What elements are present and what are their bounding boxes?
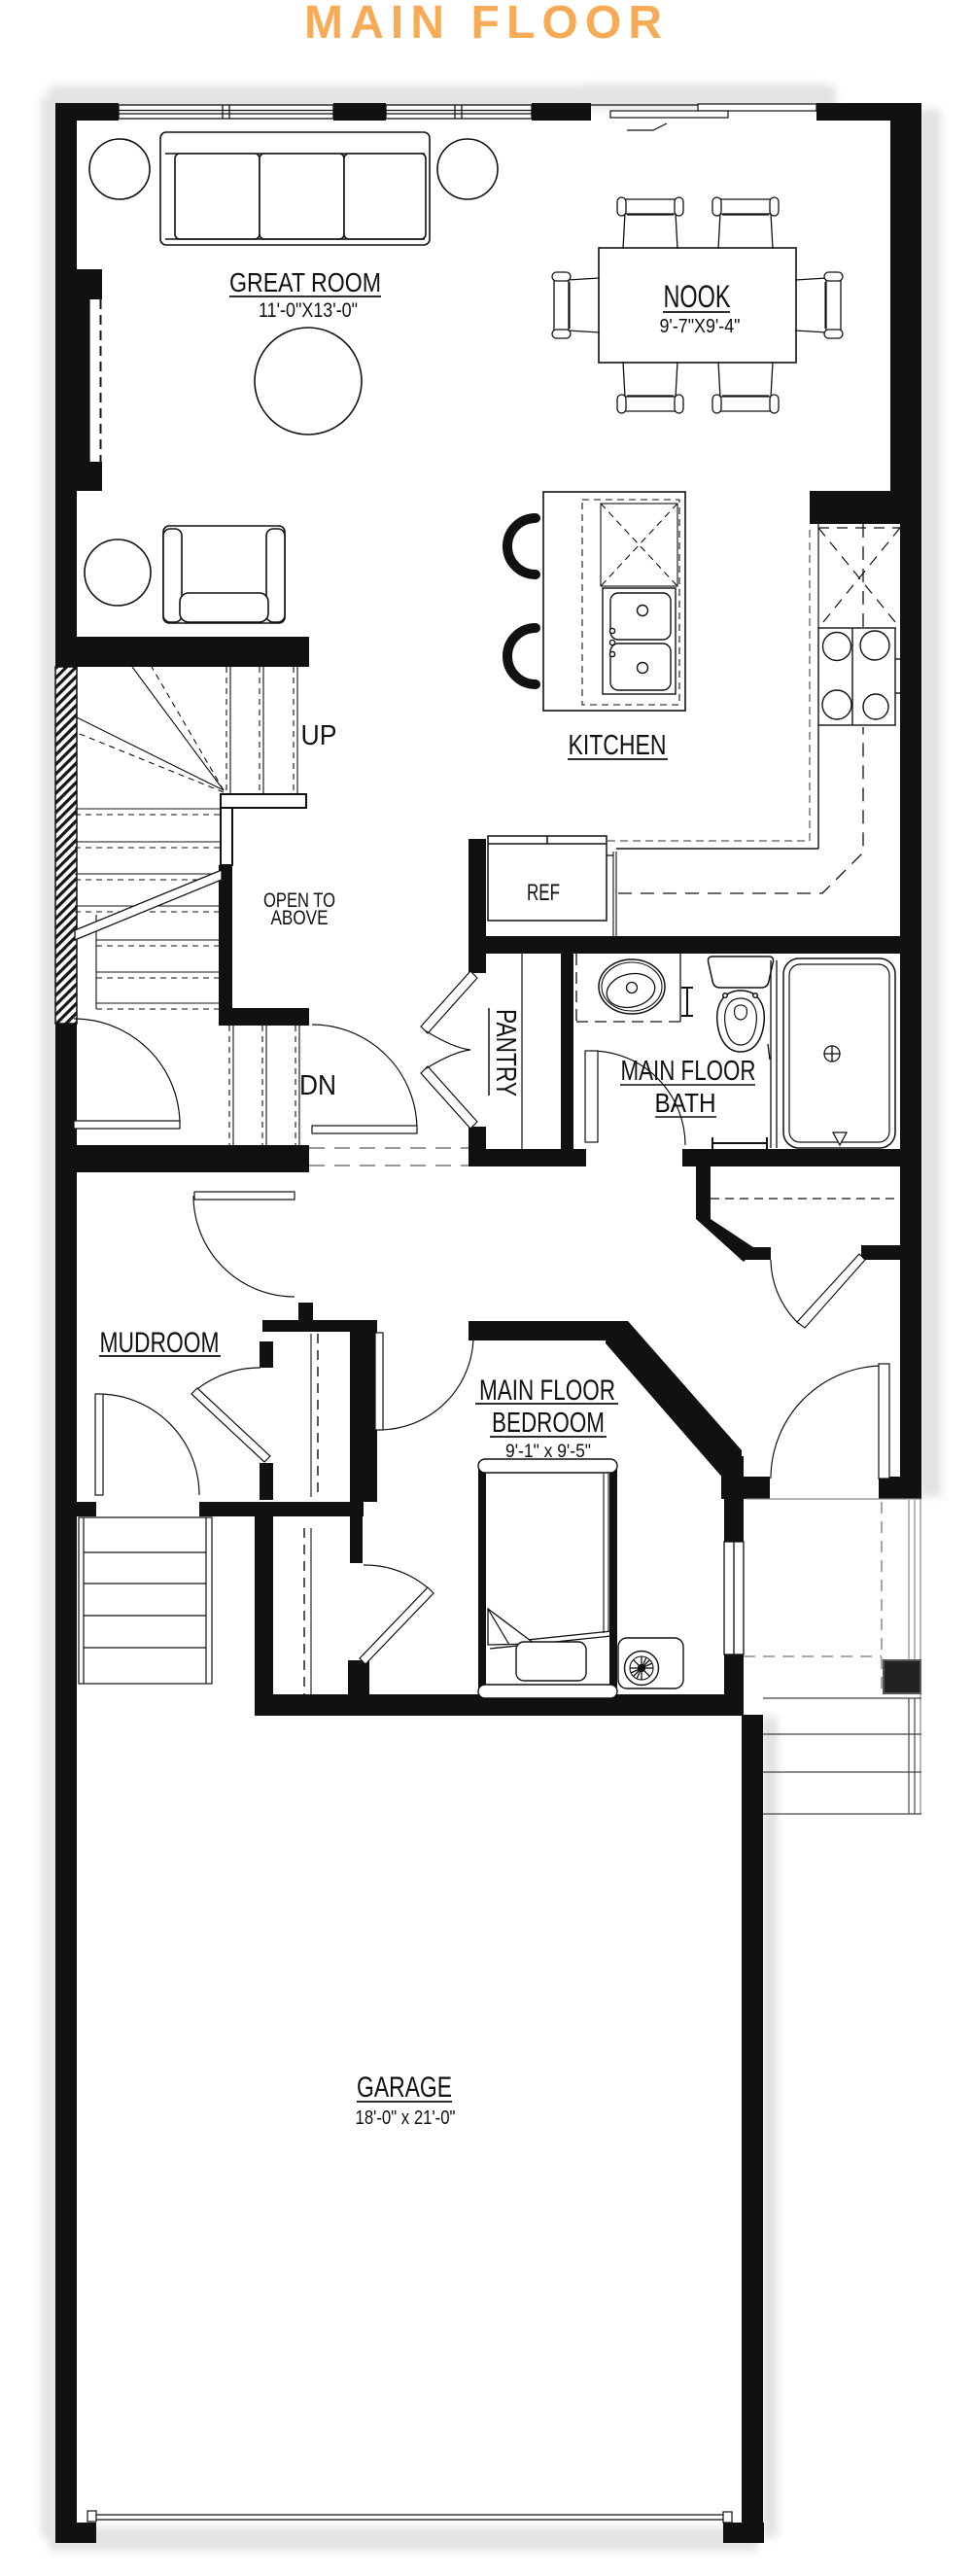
svg-text:KITCHEN: KITCHEN bbox=[569, 730, 667, 761]
svg-text:GARAGE: GARAGE bbox=[357, 2071, 452, 2104]
svg-text:MUDROOM: MUDROOM bbox=[100, 1327, 220, 1359]
svg-text:9'-7"X9'-4": 9'-7"X9'-4" bbox=[660, 316, 741, 337]
svg-text:UP: UP bbox=[301, 720, 337, 751]
svg-text:ABOVE: ABOVE bbox=[271, 907, 329, 929]
svg-text:NOOK: NOOK bbox=[664, 279, 731, 314]
svg-text:DN: DN bbox=[299, 1070, 336, 1101]
svg-text:BEDROOM: BEDROOM bbox=[492, 1408, 605, 1439]
svg-text:REF: REF bbox=[527, 880, 560, 906]
svg-text:BATH: BATH bbox=[655, 1088, 716, 1118]
svg-text:MAIN FLOOR: MAIN FLOOR bbox=[304, 0, 662, 49]
svg-text:9'-1" x 9'-5": 9'-1" x 9'-5" bbox=[505, 1442, 591, 1462]
svg-text:11'-0"X13'-0": 11'-0"X13'-0" bbox=[259, 299, 358, 322]
svg-text:18'-0" x 21'-0": 18'-0" x 21'-0" bbox=[356, 2107, 456, 2129]
svg-text:GREAT ROOM: GREAT ROOM bbox=[229, 267, 381, 297]
svg-text:PANTRY: PANTRY bbox=[490, 1009, 521, 1097]
svg-text:MAIN FLOOR: MAIN FLOOR bbox=[621, 1056, 756, 1087]
svg-text:MAIN FLOOR: MAIN FLOOR bbox=[479, 1375, 615, 1407]
